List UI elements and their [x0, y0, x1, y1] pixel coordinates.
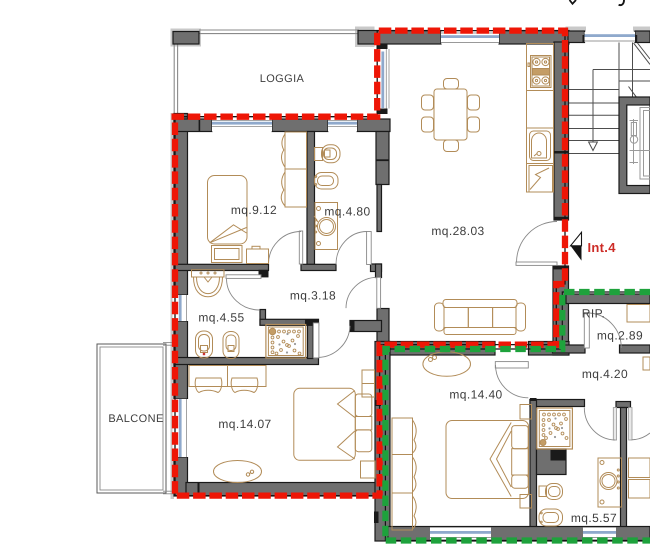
svg-text:mq.9.12: mq.9.12: [231, 203, 277, 217]
svg-text:mq.3.18: mq.3.18: [290, 289, 336, 303]
svg-text:BALCONE: BALCONE: [108, 413, 163, 425]
svg-text:mq.2.89: mq.2.89: [597, 329, 643, 343]
svg-text:mq.14.40: mq.14.40: [449, 388, 502, 402]
svg-text:mq.4.20: mq.4.20: [582, 367, 628, 381]
svg-text:LOGGIA: LOGGIA: [260, 73, 305, 85]
svg-text:Int.4: Int.4: [588, 240, 617, 255]
svg-text:mq.28.03: mq.28.03: [431, 224, 484, 238]
svg-text:mq.4.55: mq.4.55: [198, 311, 244, 325]
svg-text:mq.14.07: mq.14.07: [218, 417, 271, 431]
svg-text:RIP.: RIP.: [582, 307, 605, 321]
svg-text:mq.5.57: mq.5.57: [571, 511, 617, 525]
svg-text:mq.4.80: mq.4.80: [324, 205, 370, 219]
